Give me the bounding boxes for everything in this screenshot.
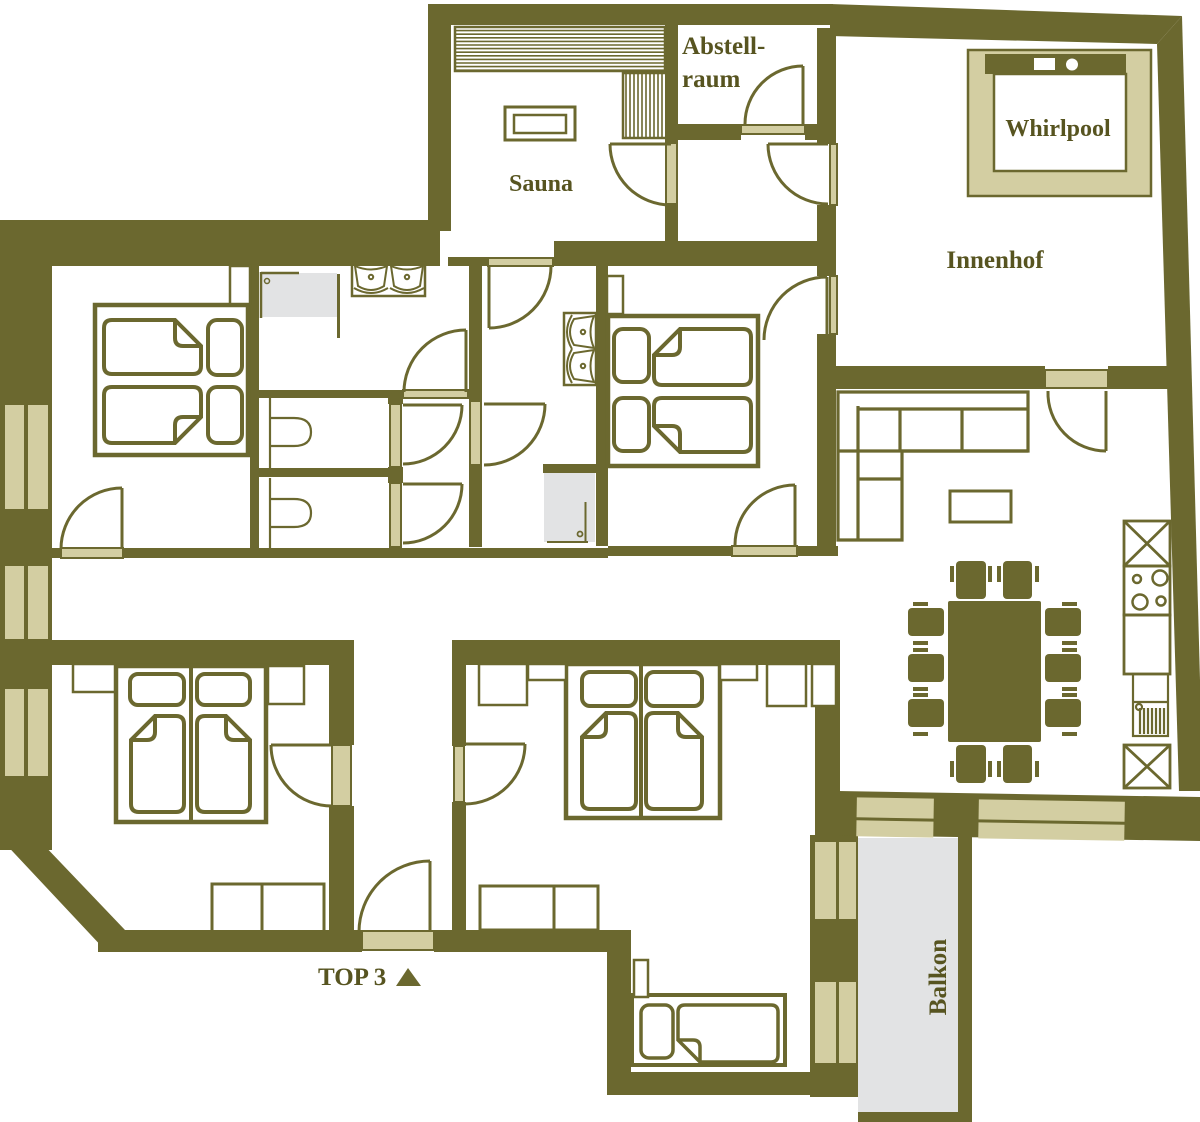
- svg-text:Whirlpool: Whirlpool: [1005, 116, 1111, 142]
- svg-text:Innenhof: Innenhof: [946, 247, 1044, 274]
- svg-text:raum: raum: [682, 66, 741, 93]
- svg-text:Abstell-: Abstell-: [682, 33, 765, 60]
- svg-text:Sauna: Sauna: [509, 171, 573, 197]
- svg-text:TOP 3: TOP 3: [318, 964, 386, 991]
- svg-text:Balkon: Balkon: [925, 939, 952, 1016]
